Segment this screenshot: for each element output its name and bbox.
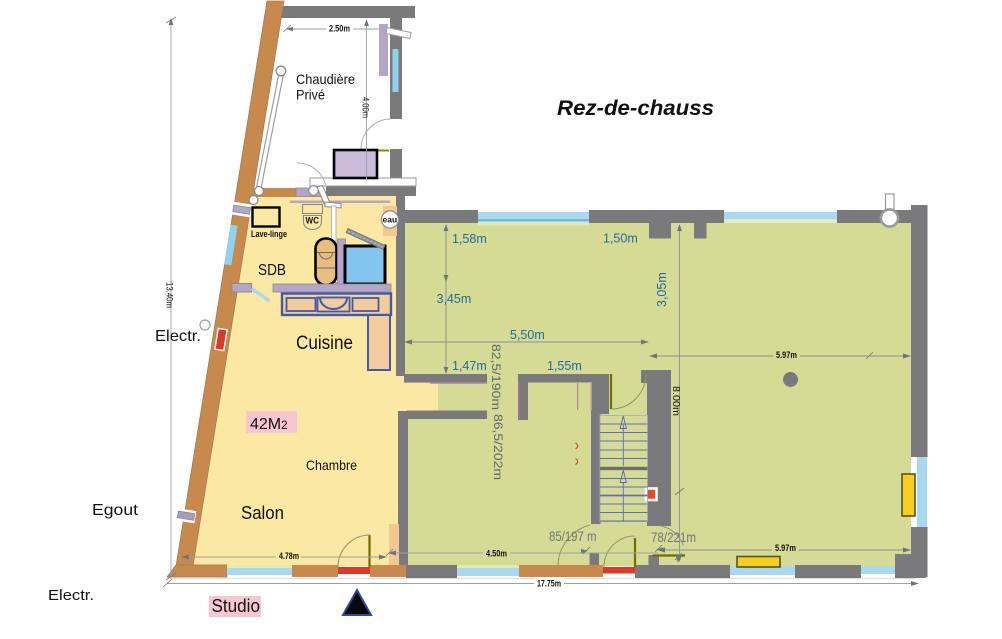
svg-text:Salon: Salon [241,503,284,523]
svg-text:Electr.: Electr. [48,587,94,604]
svg-text:Cuisine: Cuisine [296,333,353,354]
svg-text:4.00m: 4.00m [360,97,371,118]
svg-text:17.75m: 17.75m [537,579,561,590]
svg-text:82,5/190m: 82,5/190m [489,344,503,410]
svg-text:1,47m: 1,47m [452,359,487,373]
svg-text:5.97m: 5.97m [776,350,797,361]
svg-text:2.50m: 2.50m [329,24,350,35]
svg-text:78/221m: 78/221m [651,530,696,545]
svg-text:Rez-de-chauss: Rez-de-chauss [557,96,714,120]
svg-text:8.00m: 8.00m [670,386,681,416]
svg-text:Privé: Privé [296,87,325,103]
svg-text:3,05m: 3,05m [655,272,669,307]
svg-text:WC: WC [306,216,320,227]
svg-text:Lave-linge: Lave-linge [251,229,287,240]
svg-text:3,45m: 3,45m [437,292,472,306]
svg-text:Studio: Studio [212,595,261,616]
svg-text:85/197 m: 85/197 m [549,529,597,544]
svg-text:4.78m: 4.78m [279,551,299,562]
svg-text:Chaudière: Chaudière [296,71,355,87]
svg-text:4.50m: 4.50m [486,549,507,560]
svg-text:Egout: Egout [92,502,139,519]
svg-text:eau: eau [383,215,398,225]
svg-text:1,58m: 1,58m [452,232,487,246]
svg-text:1,50m: 1,50m [603,232,638,246]
svg-text:5,50m: 5,50m [510,328,545,342]
svg-text:86,5/202m: 86,5/202m [491,414,505,480]
svg-text:13.40m: 13.40m [164,282,175,308]
svg-text:1,55m: 1,55m [547,359,582,373]
svg-text:Electr.: Electr. [155,328,201,345]
svg-text:5.97m: 5.97m [775,543,796,554]
svg-text:Chambre: Chambre [306,457,357,473]
svg-text:SDB: SDB [258,262,286,279]
